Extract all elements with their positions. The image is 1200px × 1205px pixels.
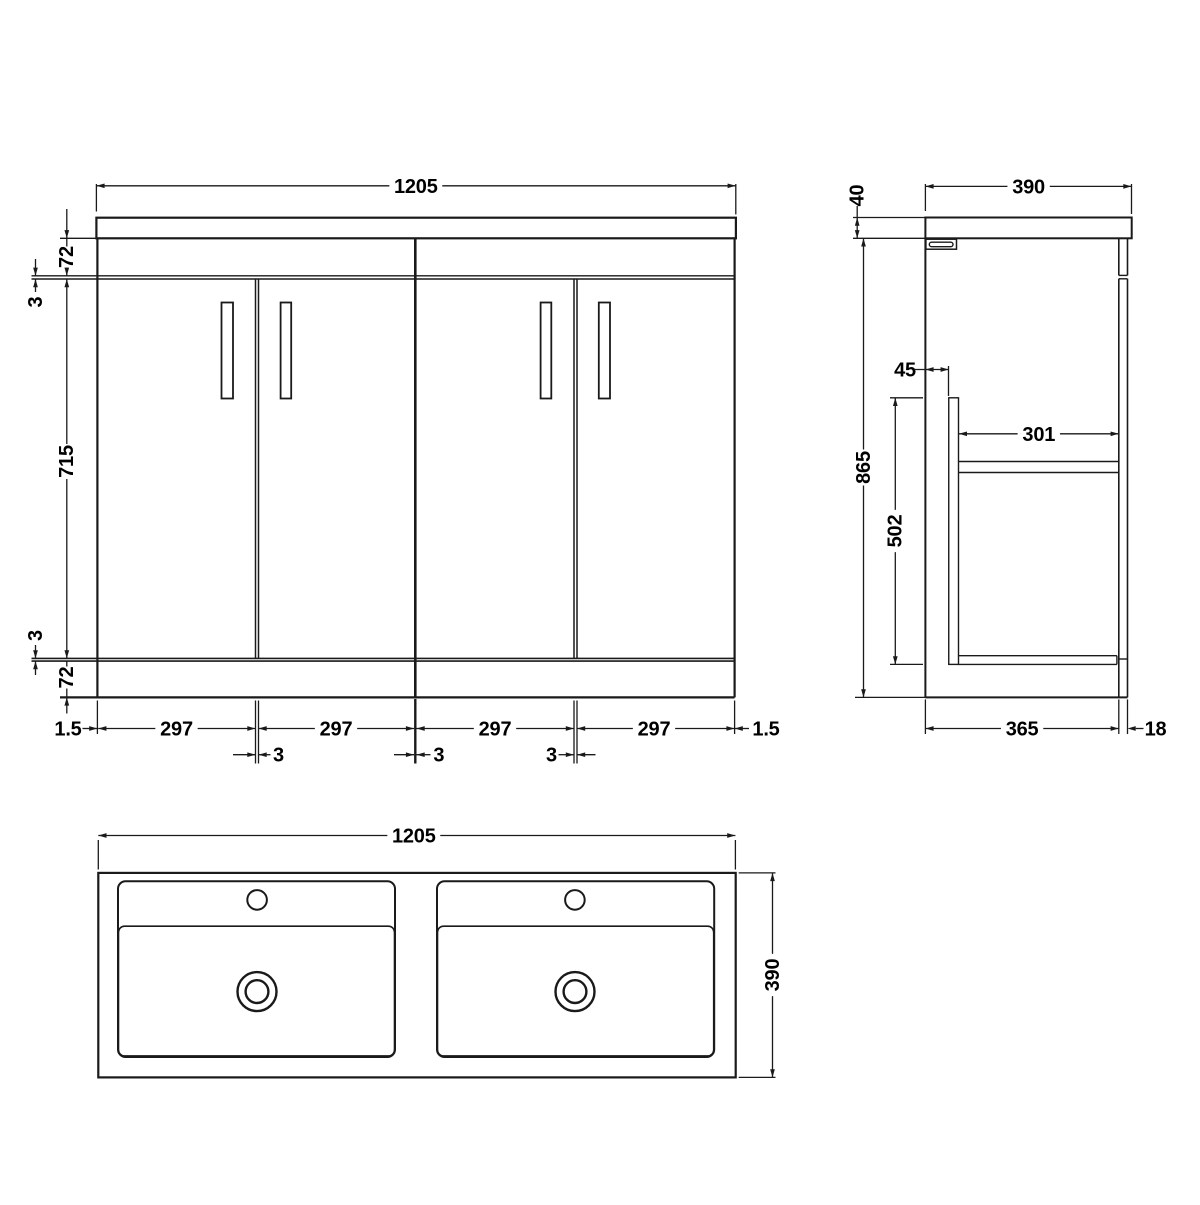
svg-text:502: 502 bbox=[885, 515, 907, 548]
svg-text:390: 390 bbox=[1012, 176, 1045, 198]
svg-text:865: 865 bbox=[853, 451, 875, 484]
svg-text:1205: 1205 bbox=[394, 176, 438, 198]
svg-text:1.5: 1.5 bbox=[752, 719, 779, 741]
svg-text:3: 3 bbox=[433, 745, 444, 767]
svg-text:40: 40 bbox=[847, 185, 869, 207]
svg-text:3: 3 bbox=[273, 745, 284, 767]
svg-text:72: 72 bbox=[56, 246, 78, 268]
svg-text:715: 715 bbox=[56, 445, 78, 478]
svg-text:297: 297 bbox=[479, 719, 512, 741]
svg-text:1205: 1205 bbox=[392, 826, 436, 848]
svg-text:3: 3 bbox=[546, 745, 557, 767]
svg-text:3: 3 bbox=[25, 630, 47, 641]
svg-text:45: 45 bbox=[894, 360, 916, 382]
svg-text:297: 297 bbox=[638, 719, 671, 741]
svg-text:297: 297 bbox=[320, 719, 353, 741]
svg-text:72: 72 bbox=[56, 667, 78, 689]
svg-text:365: 365 bbox=[1006, 719, 1039, 741]
svg-text:18: 18 bbox=[1145, 719, 1167, 741]
svg-text:390: 390 bbox=[762, 959, 784, 992]
svg-text:3: 3 bbox=[25, 296, 47, 307]
svg-text:1.5: 1.5 bbox=[54, 719, 81, 741]
svg-text:301: 301 bbox=[1022, 424, 1055, 446]
svg-text:297: 297 bbox=[160, 719, 193, 741]
